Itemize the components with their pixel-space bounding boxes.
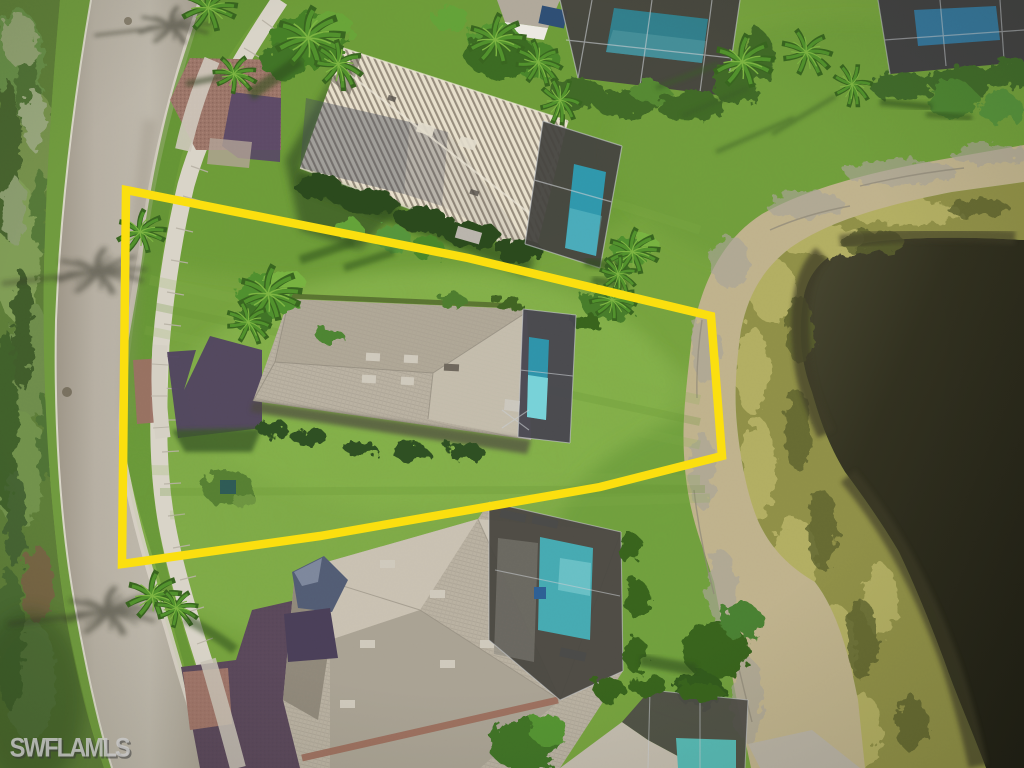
svg-text:SWFLAMLS: SWFLAMLS [10,733,130,763]
